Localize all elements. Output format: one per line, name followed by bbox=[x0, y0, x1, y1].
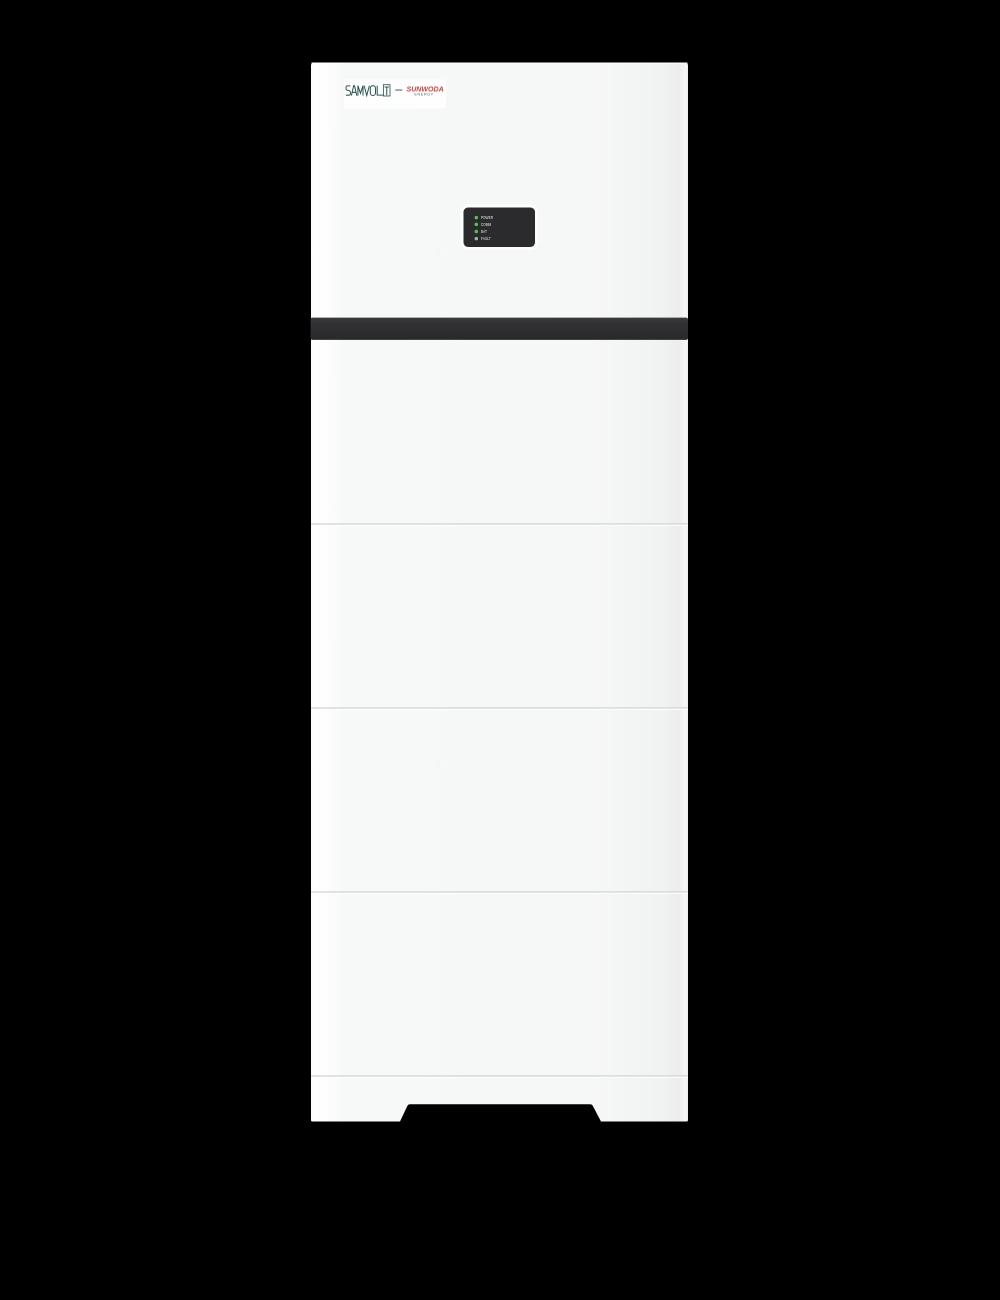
svg-text:POWER: POWER bbox=[481, 215, 493, 221]
svg-text:BAT: BAT bbox=[481, 228, 487, 234]
svg-text:COMM: COMM bbox=[481, 221, 491, 227]
svg-text:ENERGY: ENERGY bbox=[414, 92, 433, 96]
svg-text:FAULT: FAULT bbox=[481, 236, 491, 242]
